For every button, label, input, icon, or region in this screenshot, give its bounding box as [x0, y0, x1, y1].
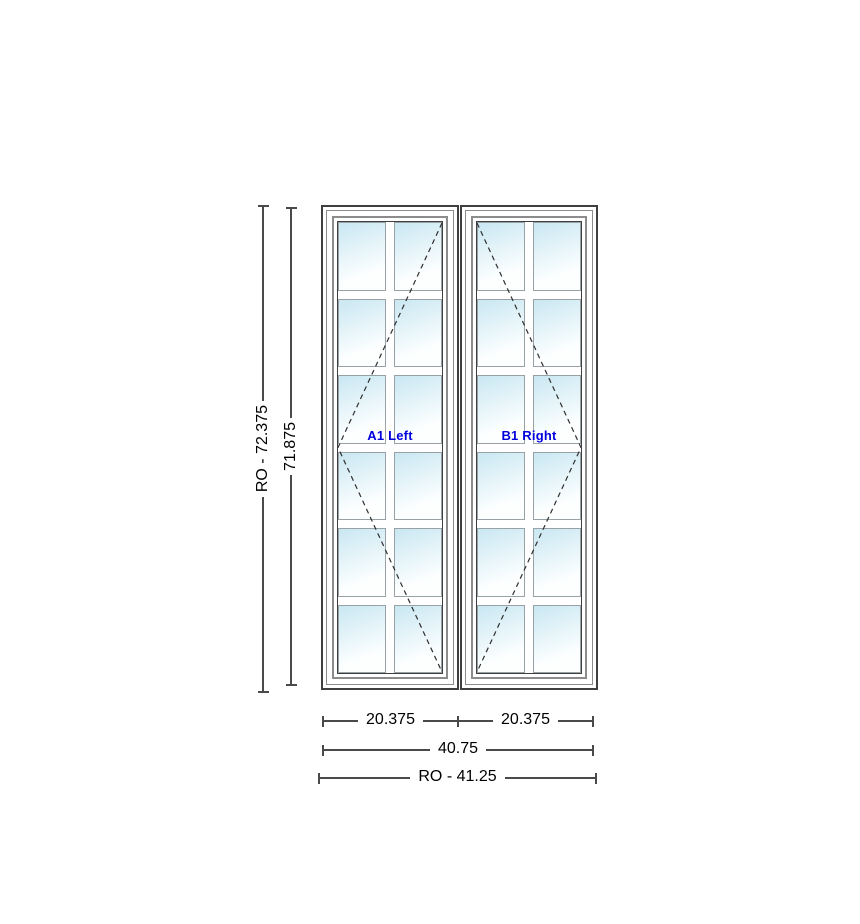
glass-pane — [338, 528, 386, 597]
dimension-label: RO - 72.375 — [254, 405, 272, 492]
dimension-width-frame: 40.75 — [322, 742, 594, 758]
window-drawing-canvas: RO - 72.375 71.875 A1 Left — [0, 0, 860, 924]
dimension-line — [423, 720, 457, 722]
dimension-label: RO - 41.25 — [418, 768, 496, 786]
glass-pane — [394, 452, 442, 521]
glass-pane — [533, 452, 581, 521]
dimension-line — [486, 749, 592, 751]
glass-pane — [477, 452, 525, 521]
glass-pane — [394, 605, 442, 674]
dimension-label: 71.875 — [282, 422, 300, 471]
glass-pane — [394, 299, 442, 368]
dimension-width-sashes: 20.375 20.375 — [322, 713, 594, 729]
window-frame: A1 Left — [326, 210, 454, 685]
glass-pane — [477, 528, 525, 597]
dimension-height-rough-opening: RO - 72.375 — [256, 205, 270, 693]
dimension-line — [459, 720, 493, 722]
dimension-height-frame: 71.875 — [284, 207, 298, 686]
dimension-line — [324, 720, 358, 722]
window-sash: A1 Left — [332, 216, 448, 679]
window-sash: B1 Right — [471, 216, 587, 679]
dimension-tick — [258, 691, 269, 693]
dimension-tick — [595, 773, 597, 784]
glass-pane — [394, 528, 442, 597]
glass-pane — [338, 452, 386, 521]
glass-pane — [394, 222, 442, 291]
dimension-line — [262, 497, 264, 691]
glass-pane — [533, 528, 581, 597]
dimension-label: 40.75 — [438, 740, 478, 758]
dimension-line — [558, 720, 592, 722]
dimension-line — [262, 207, 264, 401]
glass-grid: B1 Right — [476, 221, 582, 674]
dimension-label: 20.375 — [366, 711, 415, 729]
glass-pane — [338, 222, 386, 291]
dimension-line — [290, 475, 292, 684]
window-unit-b1[interactable]: B1 Right — [460, 205, 598, 690]
glass-pane — [533, 222, 581, 291]
glass-pane — [477, 299, 525, 368]
glass-pane — [338, 605, 386, 674]
dimension-line — [320, 777, 410, 779]
glass-pane — [533, 605, 581, 674]
dimension-tick — [592, 745, 594, 756]
dimension-width-rough-opening: RO - 41.25 — [318, 770, 597, 786]
glass-pane — [477, 605, 525, 674]
glass-grid: A1 Left — [337, 221, 443, 674]
dimension-tick — [286, 684, 297, 686]
dimension-line — [505, 777, 595, 779]
glass-pane — [533, 299, 581, 368]
dimension-tick — [592, 716, 594, 727]
glass-pane — [477, 222, 525, 291]
sash-label: B1 Right — [477, 428, 581, 443]
dimension-label: 20.375 — [501, 711, 550, 729]
window-frame: B1 Right — [465, 210, 593, 685]
window-unit-a1[interactable]: A1 Left — [321, 205, 459, 690]
sash-label: A1 Left — [338, 428, 442, 443]
glass-pane — [338, 299, 386, 368]
dimension-line — [324, 749, 430, 751]
dimension-line — [290, 209, 292, 418]
